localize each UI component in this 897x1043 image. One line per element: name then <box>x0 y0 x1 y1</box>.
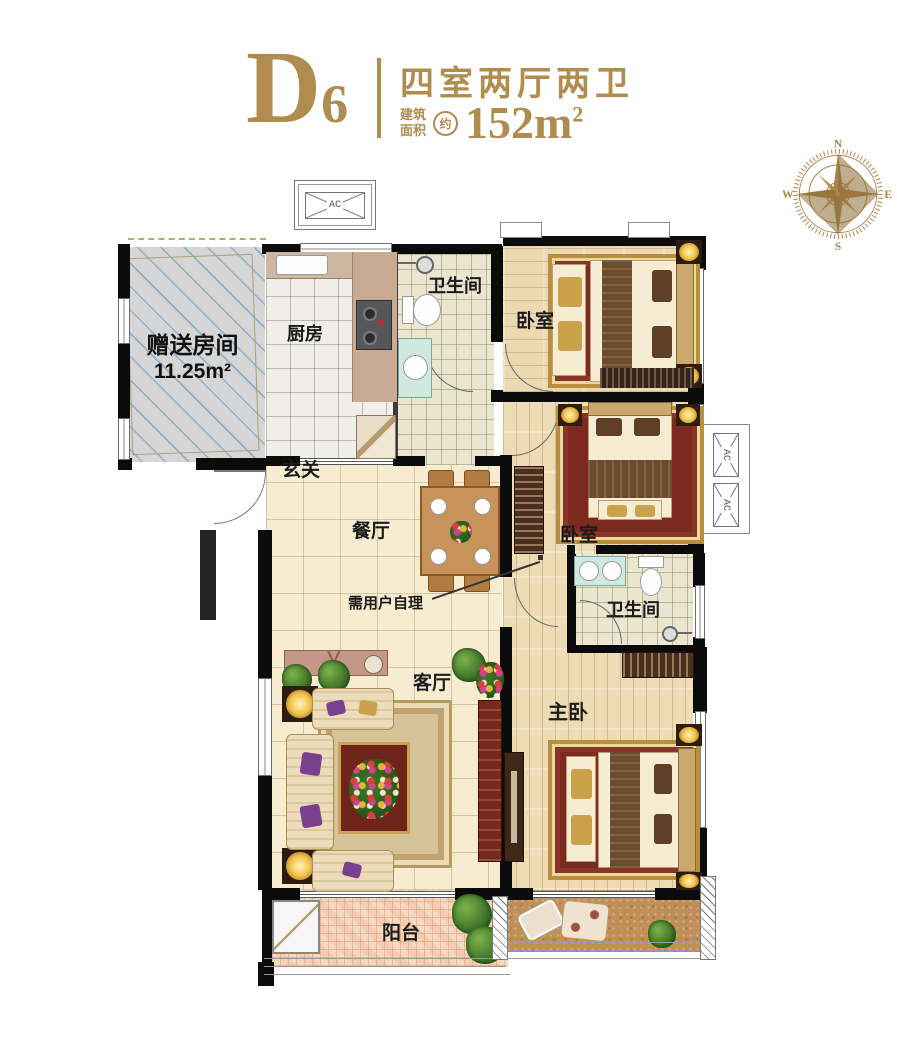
cushion <box>571 815 592 845</box>
wall <box>693 647 707 713</box>
area-row: 建筑 面积 约 152m2 <box>400 100 583 146</box>
window <box>258 678 272 776</box>
ac-envelope-icon: AC <box>713 433 739 477</box>
ac-envelope-icon: AC <box>305 192 365 219</box>
toilet-bowl <box>640 568 662 596</box>
balcony-step-line <box>264 974 510 975</box>
window <box>118 298 130 344</box>
gift-room-name: 赠送房间 <box>147 326 239 360</box>
hatched-pier <box>492 896 508 960</box>
label-living: 客厅 <box>413 668 451 695</box>
unit-number: 6 <box>321 74 348 134</box>
balcony-sliding-door <box>300 891 455 898</box>
window <box>118 418 130 460</box>
compass-n: N <box>834 138 843 151</box>
wall <box>596 545 693 554</box>
wall <box>262 890 272 968</box>
area-value: 152m2 <box>465 100 583 146</box>
label-kitchen: 厨房 <box>287 320 323 346</box>
tv-cabinet <box>478 700 502 862</box>
area-label-line2: 面积 <box>400 123 426 139</box>
unit-letter: D <box>246 30 321 145</box>
ac-platform-right: AC AC <box>700 424 750 534</box>
compass-e: E <box>884 188 892 201</box>
nightstand-lamp <box>558 404 582 426</box>
kitchen-sink <box>276 255 328 275</box>
washing-machine <box>272 900 320 954</box>
bedroom1-blanket <box>602 260 632 382</box>
entry-door-arc <box>214 472 266 524</box>
pillow <box>596 418 622 436</box>
label-hallway: 玄关 <box>282 455 320 482</box>
label-self-note: 需用户自理 <box>348 592 423 613</box>
sofa-main <box>286 734 334 850</box>
bedroom1-bench <box>600 368 694 388</box>
pillow <box>652 270 672 302</box>
label-bedroom2: 卧室 <box>560 520 598 547</box>
wall-pier <box>628 222 670 238</box>
bath2-sink <box>602 561 622 581</box>
terrace-step-line <box>505 950 707 951</box>
nightstand-lamp <box>676 724 702 746</box>
cushion <box>299 803 323 828</box>
ac-label: AC <box>327 200 343 211</box>
terrace-pillow <box>560 900 610 943</box>
dresser-mirror <box>511 771 517 843</box>
wall <box>258 776 272 890</box>
ac-label: AC <box>721 497 732 513</box>
wall <box>258 530 272 680</box>
gift-room-area: 11.25m² <box>154 360 231 384</box>
master-wardrobe <box>622 652 694 678</box>
area-sup: 2 <box>572 102 583 127</box>
balcony-step-line <box>264 958 506 959</box>
window <box>695 585 705 639</box>
pillow <box>654 764 672 794</box>
label-balcony: 阳台 <box>382 918 420 945</box>
compass-w: W <box>782 188 794 201</box>
bath2-vanity <box>574 556 626 586</box>
area-number: 152m <box>465 97 572 148</box>
toilet-tank <box>638 556 664 568</box>
bath1-sink <box>403 355 428 380</box>
entry-door-leaf <box>214 470 266 472</box>
balcony-step-line <box>264 966 506 967</box>
terrace-plant <box>648 920 676 948</box>
kitchen-stove <box>356 300 392 350</box>
wall <box>491 390 503 402</box>
sofa-loveseat <box>312 688 394 730</box>
shower-arm <box>676 632 692 634</box>
wall <box>196 458 266 470</box>
shower-head-icon <box>662 626 678 642</box>
bedroom1-chaise <box>552 264 586 376</box>
terrace-step-line <box>505 942 707 943</box>
header-divider <box>377 58 381 138</box>
cushion <box>607 505 627 517</box>
cushion <box>358 700 378 717</box>
pillow <box>652 326 672 358</box>
compass-rose-icon: N E S W <box>780 136 896 252</box>
label-bath1: 卫生间 <box>428 272 482 298</box>
plate <box>430 548 447 565</box>
wall <box>503 392 703 402</box>
dining-chair <box>428 574 454 592</box>
ac-label: AC <box>721 447 732 463</box>
ac-envelope-icon: AC <box>713 483 739 527</box>
area-label: 建筑 面积 <box>400 107 426 138</box>
nightstand-lamp <box>676 404 700 426</box>
bedroom2-blanket <box>588 460 672 498</box>
gift-dashed-line <box>128 238 266 240</box>
label-bedroom1: 卧室 <box>516 306 554 333</box>
note-leader-dot <box>538 555 543 560</box>
wall <box>491 246 503 342</box>
room-gift-label: 赠送房间 11.25m² <box>120 247 265 462</box>
shower-arm <box>398 262 416 264</box>
plate <box>474 498 491 515</box>
master-blanket <box>610 752 640 868</box>
burner <box>377 319 384 326</box>
pillow <box>634 418 660 436</box>
room-gift-floor: 赠送房间 11.25m² <box>120 247 265 462</box>
master-bench <box>566 756 596 862</box>
burner <box>363 331 377 345</box>
cushion <box>558 321 582 351</box>
clock-icon <box>364 655 383 674</box>
wall-pier <box>500 222 542 238</box>
burner <box>363 307 377 321</box>
kitchen-cabinet <box>356 415 396 459</box>
bedroom2-wardrobe <box>514 466 544 554</box>
bedroom2-headboard <box>588 402 672 416</box>
terrace-step-line <box>505 958 707 959</box>
label-dining: 餐厅 <box>352 516 390 543</box>
toilet-bowl <box>413 294 441 326</box>
cushion <box>342 861 363 879</box>
terrace-sliding-door <box>533 891 655 898</box>
wall <box>393 456 425 466</box>
label-bath2: 卫生间 <box>606 596 660 622</box>
floorplan-page: D6 四室两厅两卫 建筑 面积 约 152m2 N E S W <box>0 0 897 1043</box>
master-dresser <box>504 752 524 862</box>
dining-table <box>420 486 500 576</box>
cushion <box>635 505 655 517</box>
wall <box>475 456 502 466</box>
cushion <box>558 277 582 307</box>
cushion <box>326 699 347 716</box>
plate <box>474 548 491 565</box>
wall <box>500 455 512 577</box>
bedroom2-bench <box>598 500 662 520</box>
pillow <box>654 814 672 844</box>
label-master: 主卧 <box>548 696 588 725</box>
coffee-table-flowers <box>349 759 399 819</box>
cushion <box>571 769 592 799</box>
nightstand-lamp <box>676 240 702 264</box>
master-headboard <box>678 748 696 872</box>
bath2-sink <box>579 561 599 581</box>
wall <box>200 530 216 620</box>
area-label-line1: 建筑 <box>400 107 426 123</box>
ac-unit-top: AC <box>294 180 376 230</box>
approx-badge: 约 <box>433 111 458 136</box>
nightstand-lamp <box>676 872 702 890</box>
centerpiece-flowers <box>450 521 472 543</box>
wall <box>693 553 705 587</box>
hatched-pier <box>700 876 716 960</box>
cushion <box>300 752 323 777</box>
coffee-table <box>338 742 410 834</box>
compass-s: S <box>835 240 841 252</box>
bath1-vanity <box>398 338 432 398</box>
plate <box>430 498 447 515</box>
unit-code: D6 <box>246 36 348 140</box>
sofa-loveseat <box>312 850 394 892</box>
